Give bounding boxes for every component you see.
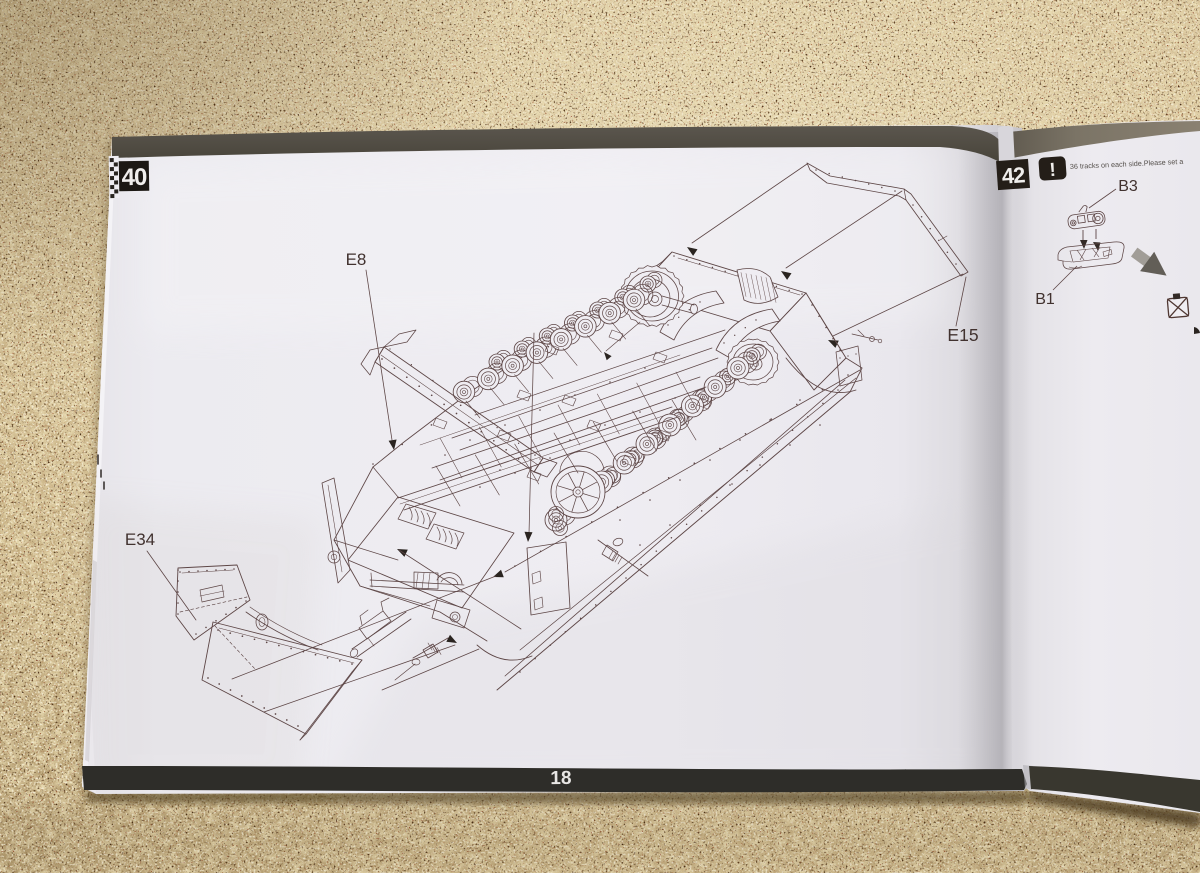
svg-text:42: 42 — [1001, 162, 1026, 189]
svg-text:E34: E34 — [125, 530, 155, 549]
svg-text:E15: E15 — [947, 325, 978, 345]
svg-text:B3: B3 — [1118, 178, 1138, 195]
svg-text:E8: E8 — [346, 250, 367, 269]
svg-text:B1: B1 — [1035, 291, 1055, 308]
svg-text:18: 18 — [550, 768, 571, 789]
svg-text:40: 40 — [121, 164, 147, 191]
